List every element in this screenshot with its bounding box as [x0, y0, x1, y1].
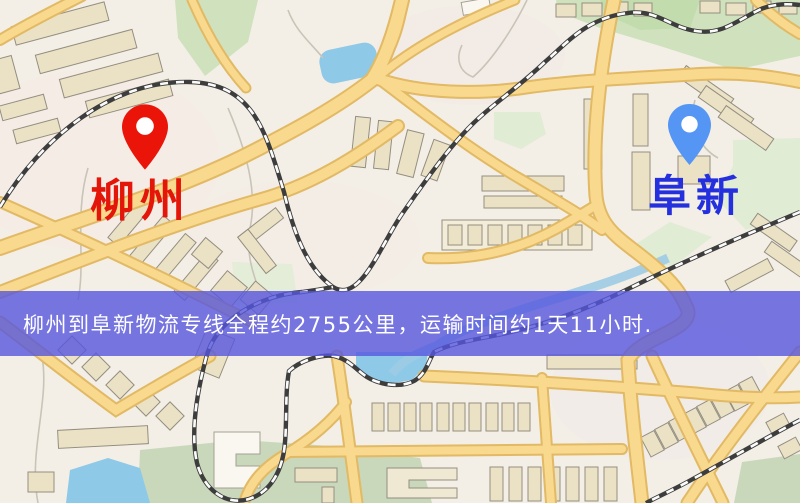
logistics-map-screenshot: 柳州到阜新物流专线全程约2755公里，运输时间约1天11小时. 柳州 阜新: [0, 0, 800, 503]
origin-pin-icon: [122, 103, 168, 171]
origin-label: 柳州: [90, 178, 190, 223]
map-image: [0, 0, 800, 503]
route-info-text: 柳州到阜新物流专线全程约2755公里，运输时间约1天11小时.: [0, 309, 653, 339]
destination-label: 阜新: [648, 176, 744, 219]
route-info-banner: 柳州到阜新物流专线全程约2755公里，运输时间约1天11小时.: [0, 291, 800, 356]
destination-pin-icon: [668, 103, 711, 166]
